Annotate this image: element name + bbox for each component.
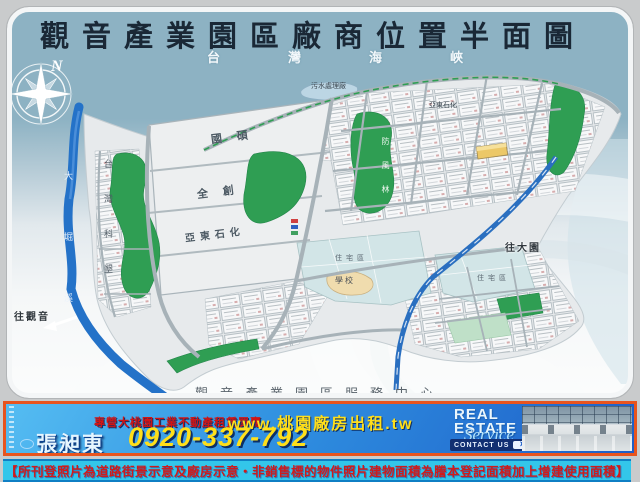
compass-icon: N: [12, 58, 73, 126]
warehouse-ceiling: [522, 406, 632, 424]
ad-banner[interactable]: 專營大桃園工業不動產租賃買賣 www.桃園廠房出租.tw 張昶東 0920-33…: [3, 401, 637, 456]
page-title: 觀音產業園區廠商位置半面圖: [40, 13, 586, 55]
sewage-pond: [301, 82, 358, 100]
svg-text:N: N: [50, 58, 64, 75]
banner-deco-dots: [9, 406, 14, 451]
legend-marks: [291, 219, 298, 235]
map-card: 觀音產業園區廠商位置半面圖: [7, 7, 633, 398]
industrial-park-map: N: [12, 12, 628, 393]
warehouse-floor: [522, 436, 632, 451]
disclaimer-strip: 【所刊登照片為道路街景示意及廠房示意‧非銷售標的物件照片建物面積為謄本登記面積加…: [3, 459, 631, 482]
phone-number[interactable]: 0920-337-792: [128, 422, 308, 453]
real-estate-logo: REAL ESTATE Service: [454, 408, 517, 437]
warehouse-doors: [522, 425, 632, 434]
agent-name: 張昶東: [36, 428, 105, 456]
disclaimer-text: 【所刊登照片為道路街景示意及廠房示意‧非銷售標的物件照片建物面積為謄本登記面積加…: [5, 461, 629, 480]
direction-arrow: [43, 317, 77, 331]
banner-deco-ring: [20, 439, 34, 449]
warehouse-photo: [522, 406, 632, 451]
